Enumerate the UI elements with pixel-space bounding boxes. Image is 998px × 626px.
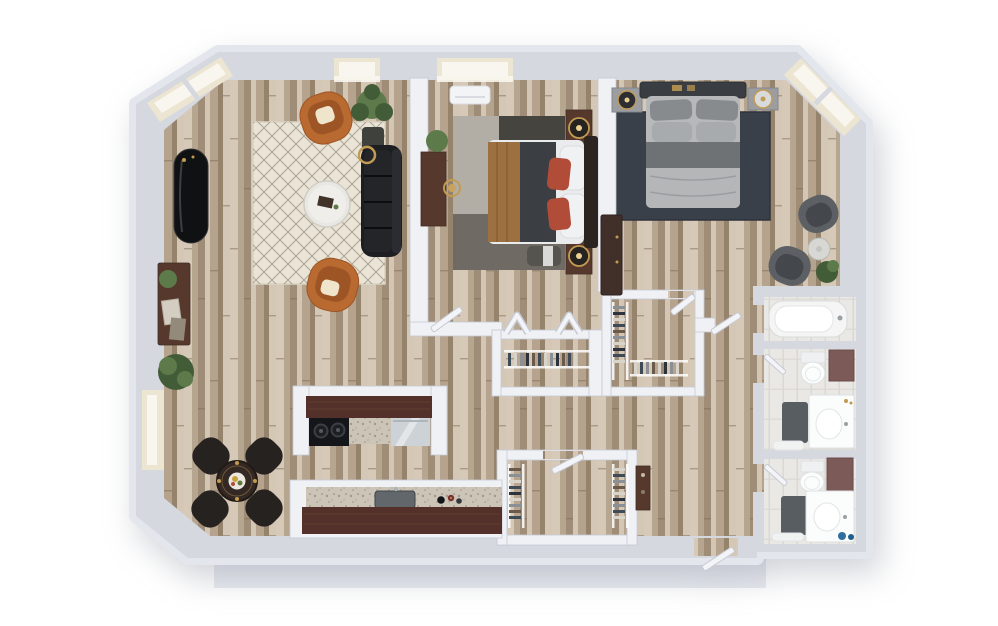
pillow-gray-light [652,122,692,142]
white-bath-mat [772,533,804,541]
white-bath-mat [773,441,804,450]
window-bedroom1-top [437,58,513,82]
side-table [808,238,830,260]
pillow-gray-light [696,122,736,142]
window-left-wall [142,390,164,470]
headboard-1 [584,136,598,248]
floor-plan-canvas [0,0,998,626]
hallway-storage-shelf [636,466,650,510]
dark-bath-mat [782,402,808,443]
base-counter [290,480,502,538]
sink [814,503,840,531]
bathtub-room-door-gap [753,305,764,333]
tall-dresser [601,215,622,295]
toilet-tank [801,352,825,363]
blue-bottle [848,534,854,540]
faucet [394,487,398,491]
ac-unit [450,86,490,104]
sideboard [158,263,190,345]
tub-faucet [838,316,843,321]
storage-cabinet [827,458,853,491]
double-bed-2 [640,82,746,208]
pillow-gray [650,99,693,121]
floor-plan-svg [0,0,998,626]
bathroom2-door-gap [753,464,764,492]
double-bed-1 [488,136,598,248]
hanging-clothes [509,468,521,519]
pillow-gray [696,99,739,121]
nightstand-left [612,88,642,112]
counter-top-wood [306,396,432,418]
foot-bench [527,246,561,266]
sink [816,409,842,439]
blue-bottle [838,532,846,540]
desk-plant [426,130,448,152]
apartment-floor-plan [136,52,866,571]
granite-worktop [349,418,391,444]
toilet-tank [801,461,824,472]
hanging-clothes [613,468,625,519]
nightstand-right [748,88,778,110]
window-living-top [334,58,380,82]
bathroom1-door-gap [753,355,764,383]
bathtub-room [769,301,847,337]
wall-bedroom1-south [410,322,502,336]
storage-cabinet [829,350,854,381]
round-dining-table [217,461,257,501]
round-coffee-table [304,181,350,227]
pillow-red-top [546,157,571,191]
kitchen-sink [375,491,415,508]
pillow-red-bottom [546,197,571,231]
blanket-band [646,142,740,168]
shrub-plant [158,354,194,390]
dark-bath-mat [781,496,808,535]
black-console-table [174,149,208,243]
